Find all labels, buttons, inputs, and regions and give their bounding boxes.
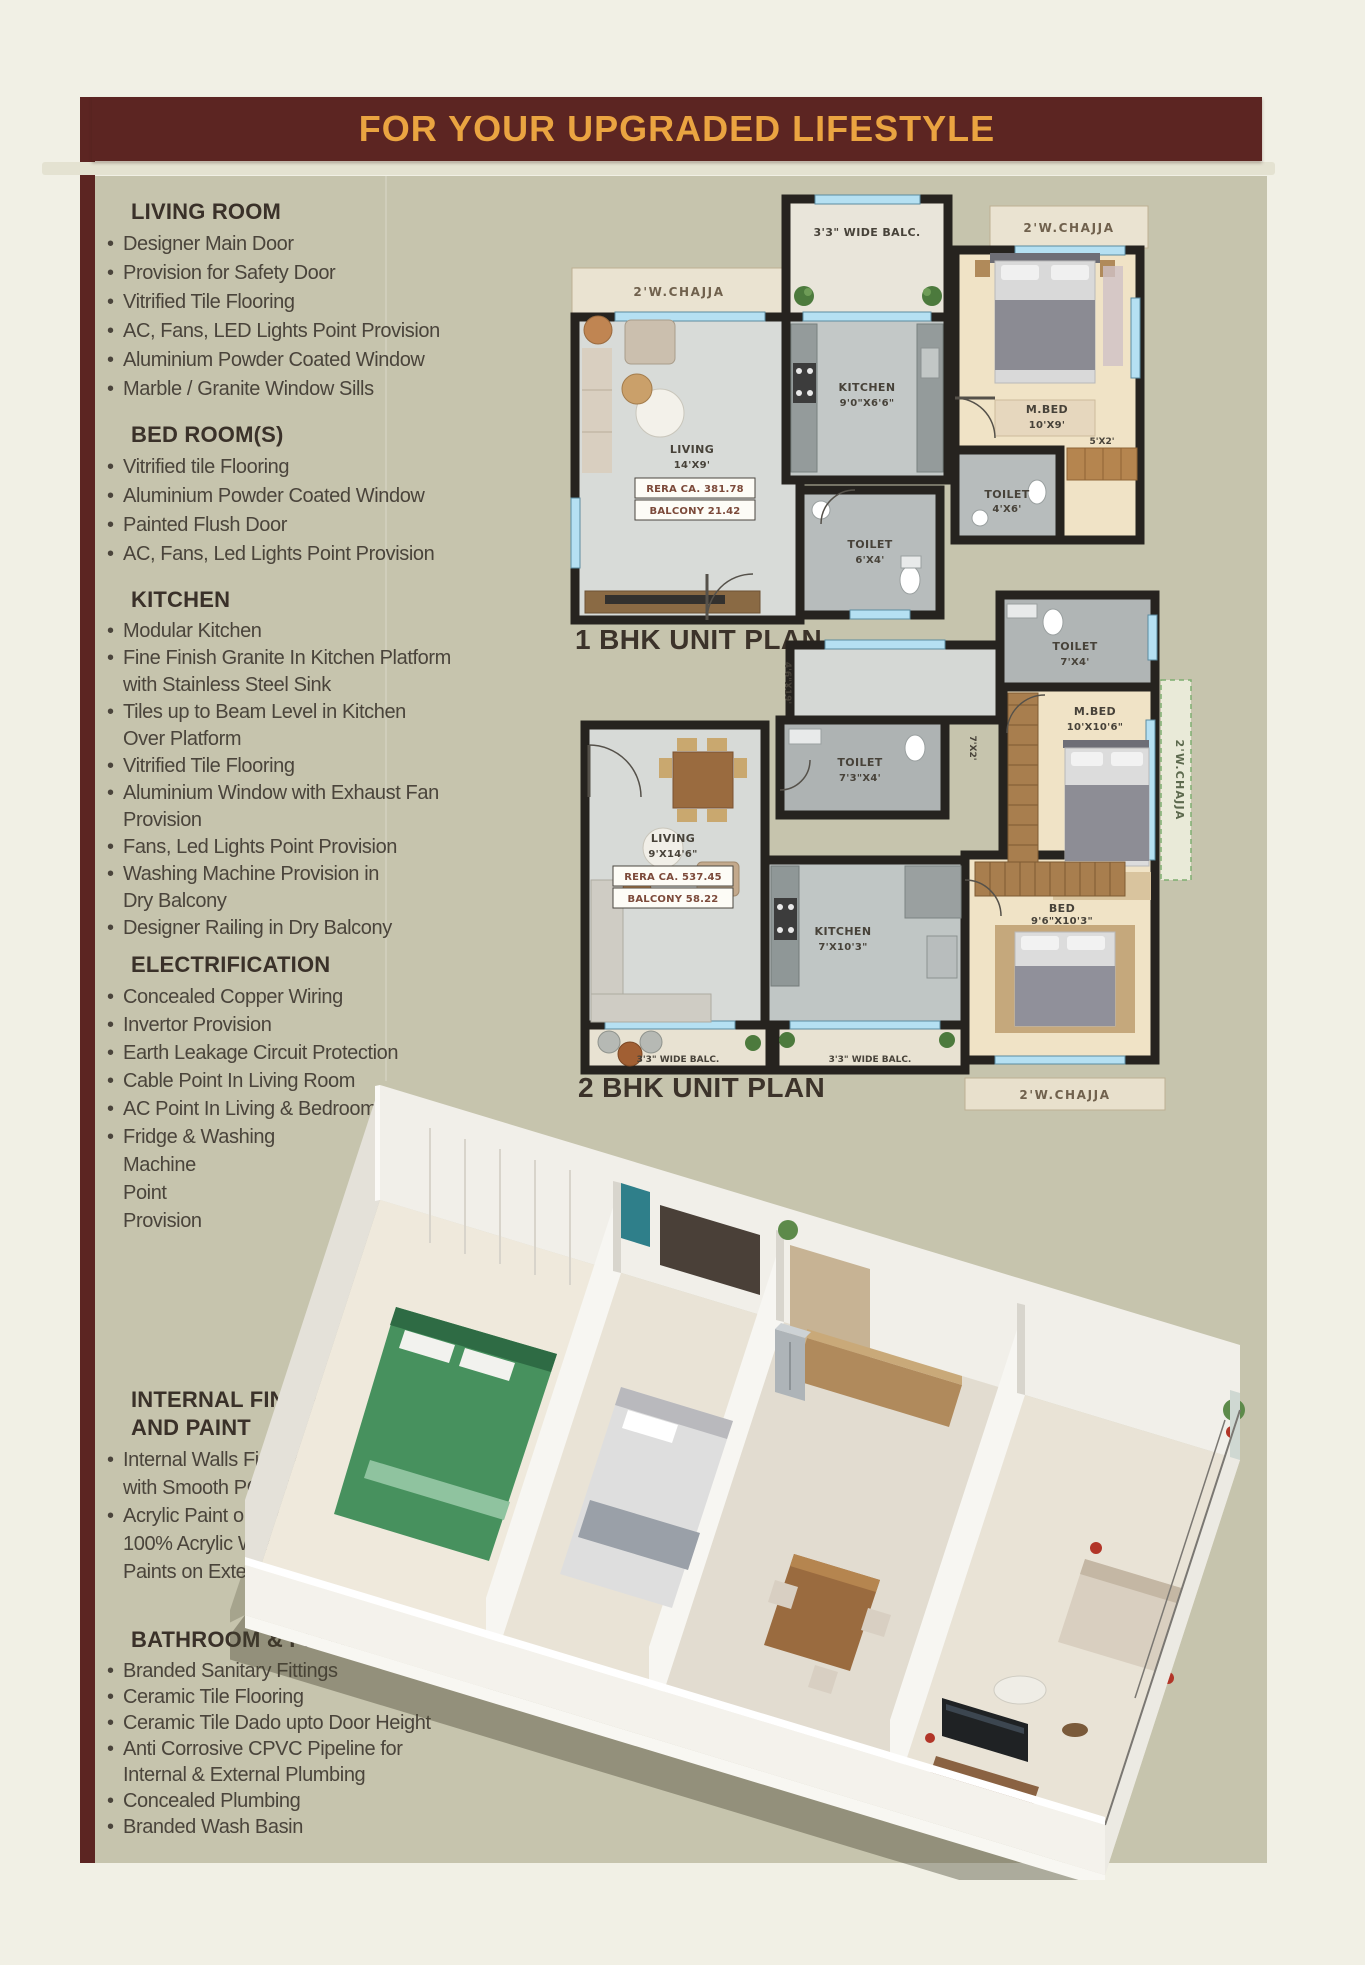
label-toilet-top-dim: 7'X4' — [1060, 657, 1089, 668]
spec-item: AC, Fans, Led Lights Point Provision — [105, 540, 467, 569]
left-wall-top — [375, 1085, 380, 1201]
spec-section-bedrooms: BED ROOM(S) Vitrified tile Flooring Alum… — [105, 421, 467, 569]
spec-item: Vitrified Tile Flooring — [105, 288, 467, 317]
label-kitchen-dim: 9'0"X6'6" — [840, 398, 895, 409]
spec-list: Designer Main Door Provision for Safety … — [105, 230, 467, 404]
spec-item: Fine Finish Granite In Kitchen Platformw… — [105, 645, 467, 699]
label-kitchen: KITCHEN — [815, 925, 872, 938]
brochure-page: { "colors":{"banner_bg":"#5c2522","banne… — [0, 0, 1365, 1965]
section-title: ELECTRIFICATION — [131, 951, 467, 979]
spec-item: Washing Machine Provision inDry Balcony — [105, 861, 467, 915]
label-mbed: M.BED — [1026, 403, 1068, 416]
spec-item: Aluminium Window with Exhaust FanProvisi… — [105, 780, 467, 834]
label-toilet-b-dim: 4'X6' — [992, 504, 1021, 515]
label-toilet-b: TOILET — [984, 488, 1029, 501]
spec-item: Provision for Safety Door — [105, 259, 467, 288]
label-mbed: M.BED — [1074, 705, 1116, 718]
spec-item: Tiles up to Beam Level in KitchenOver Pl… — [105, 699, 467, 753]
label-toilet-mid-dim: 7'3"X4' — [839, 773, 881, 784]
label-living: LIVING — [651, 832, 695, 845]
label-chajja-right: 2'W.CHAJJA — [1023, 221, 1114, 235]
section-title: BED ROOM(S) — [131, 421, 467, 449]
label-dim-7x2: 7'X2' — [967, 736, 977, 761]
spec-item: Modular Kitchen — [105, 618, 467, 645]
label-kitchen: KITCHEN — [839, 381, 896, 394]
label-balcony-area: BALCONY 21.42 — [650, 506, 741, 517]
label-bed2: BED — [1049, 902, 1075, 915]
label-kitchen-dim: 7'X10'3" — [818, 942, 867, 953]
chajja-right-box: 2'W.CHAJJA — [990, 206, 1148, 248]
bed2-furniture — [975, 862, 1135, 1033]
label-chajja-right: 2'W.CHAJJA — [1173, 740, 1186, 821]
spec-section-living-room: LIVING ROOM Designer Main Door Provision… — [105, 198, 467, 404]
spec-item: Marble / Granite Window Sills — [105, 375, 467, 404]
floor-plan-2bhk: 2'W.CHAJJA 2'W.CHAJJA — [575, 580, 1195, 1115]
spec-section-kitchen: KITCHEN Modular Kitchen Fine Finish Gran… — [105, 586, 467, 942]
chajja-right-box: 2'W.CHAJJA — [1161, 680, 1191, 880]
label-toilet-top: TOILET — [1052, 640, 1097, 653]
label-wardrobe-dim: 5'X2' — [1090, 437, 1115, 447]
label-rera-area: RERA CA. 537.45 — [624, 872, 722, 883]
apartment-3d-render — [230, 1080, 1270, 1880]
label-mbed-dim: 10'X9' — [1029, 420, 1066, 431]
spec-list: Vitrified tile Flooring Aluminium Powder… — [105, 453, 467, 569]
label-chajja-left: 2'W.CHAJJA — [633, 285, 724, 299]
section-title: KITCHEN — [131, 586, 467, 614]
left-accent-bar — [80, 97, 95, 1863]
spec-item: Painted Flush Door — [105, 511, 467, 540]
section-title: LIVING ROOM — [131, 198, 467, 226]
spec-item: Invertor Provision — [105, 1011, 467, 1039]
label-balcony-area: BALCONY 58.22 — [628, 894, 719, 905]
label-living-dim: 9'X14'6" — [648, 849, 697, 860]
spec-item: Aluminium Powder Coated Window — [105, 482, 467, 511]
chajja-left-box: 2'W.CHAJJA — [572, 268, 787, 314]
label-balcony-top: 3'3" WIDE BALC. — [813, 226, 920, 239]
spec-item: Concealed Copper Wiring — [105, 983, 467, 1011]
spec-item: Fans, Led Lights Point Provision — [105, 834, 467, 861]
label-mbed-dim: 10'X10'6" — [1067, 722, 1124, 733]
label-toilet-a: TOILET — [847, 538, 892, 551]
spec-item: Vitrified Tile Flooring — [105, 753, 467, 780]
label-bed2-dim: 9'6"X10'3" — [1031, 916, 1093, 927]
label-toilet-mid: TOILET — [837, 756, 882, 769]
label-balcony-left: 3'3" WIDE BALC. — [637, 1055, 720, 1065]
label-dim-dry: 4'6"X19' — [782, 662, 792, 704]
spec-list: Modular Kitchen Fine Finish Granite In K… — [105, 618, 467, 942]
room-dry-balcony — [790, 645, 1000, 720]
spec-item: AC, Fans, LED Lights Point Provision — [105, 317, 467, 346]
label-balcony-right: 3'3" WIDE BALC. — [829, 1055, 912, 1065]
label-rera-area: RERA CA. 381.78 — [646, 484, 744, 495]
page-title: FOR YOUR UPGRADED LIFESTYLE — [359, 108, 995, 150]
label-toilet-a-dim: 6'X4' — [855, 555, 884, 566]
spec-item: Earth Leakage Circuit Protection — [105, 1039, 467, 1067]
spec-item: Designer Main Door — [105, 230, 467, 259]
spec-item: Aluminium Powder Coated Window — [105, 346, 467, 375]
spec-item: Designer Railing in Dry Balcony — [105, 915, 467, 942]
spec-item: Vitrified tile Flooring — [105, 453, 467, 482]
label-living-dim: 14'X9' — [674, 460, 711, 471]
label-living: LIVING — [670, 443, 714, 456]
